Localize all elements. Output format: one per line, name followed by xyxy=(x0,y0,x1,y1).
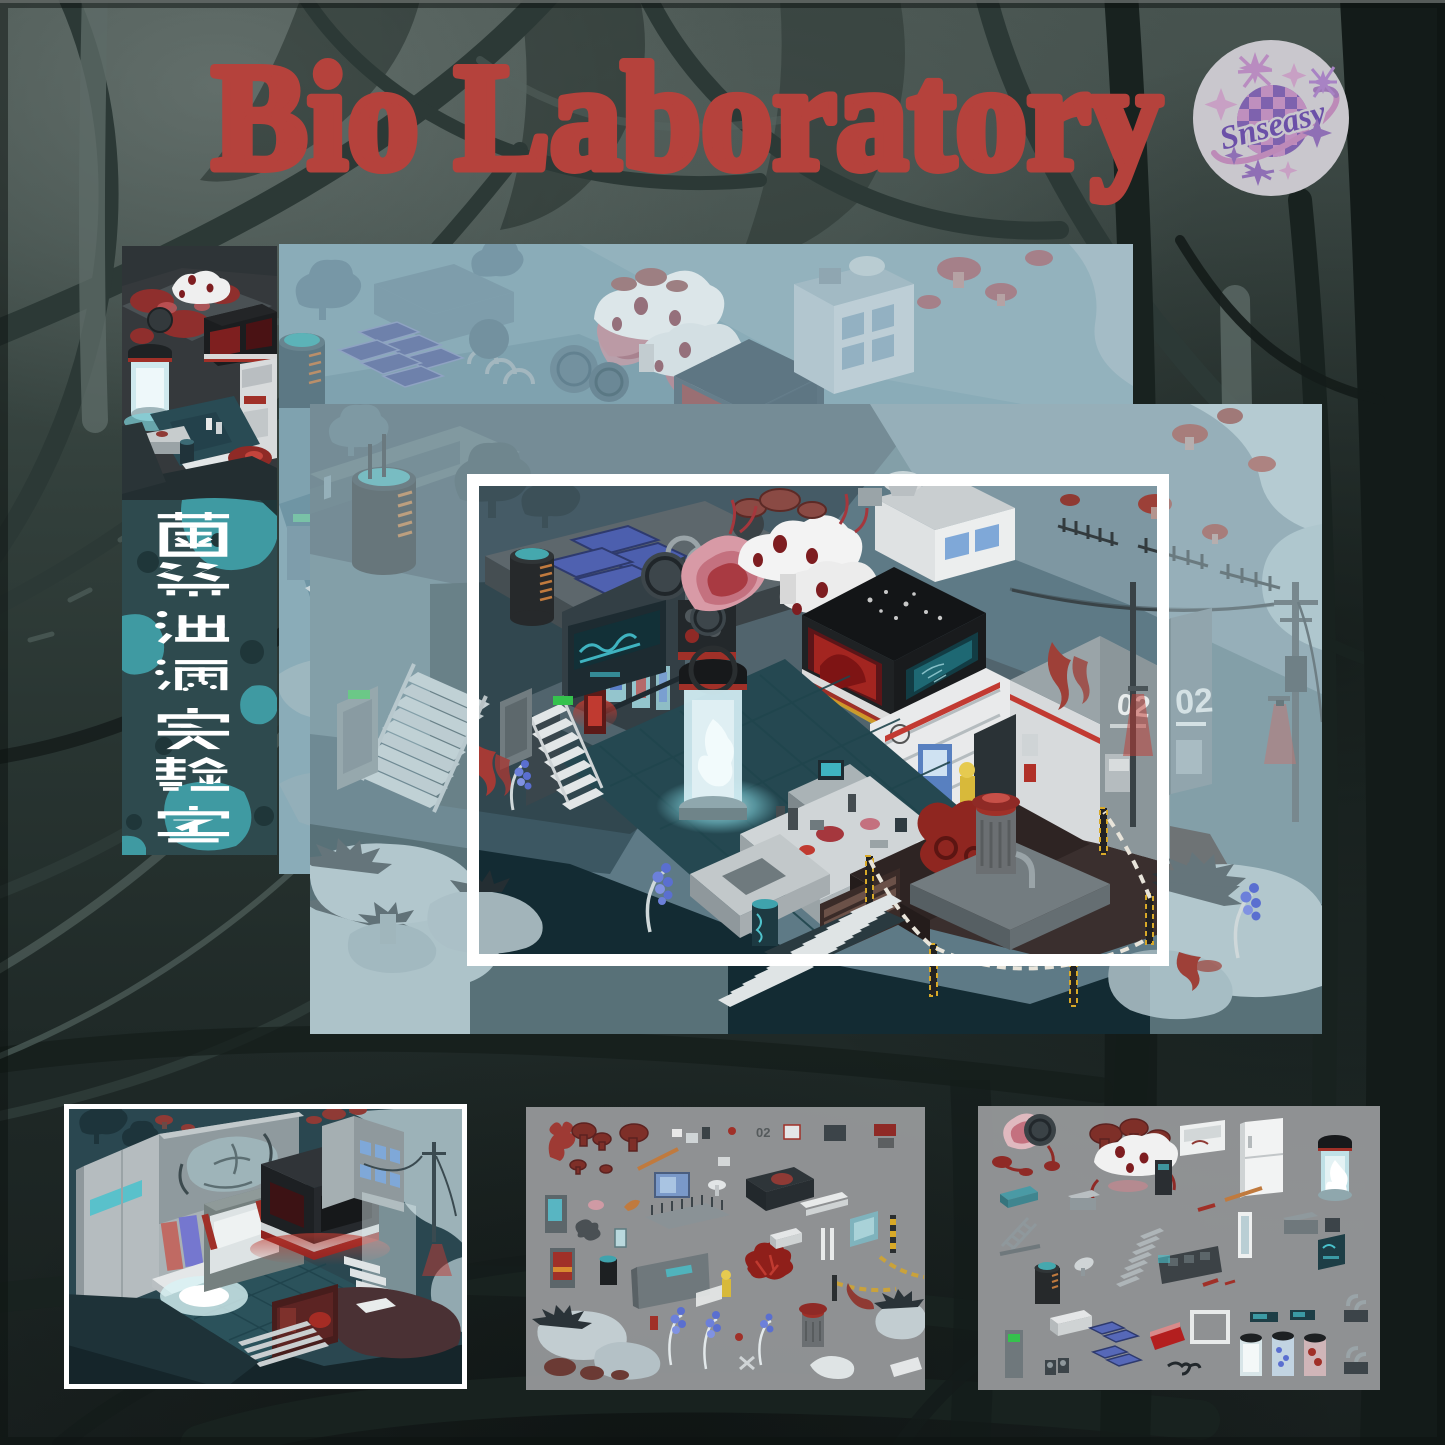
svg-text:Bio Laboratory: Bio Laboratory xyxy=(212,33,1162,201)
svg-text:02: 02 xyxy=(756,1125,770,1140)
